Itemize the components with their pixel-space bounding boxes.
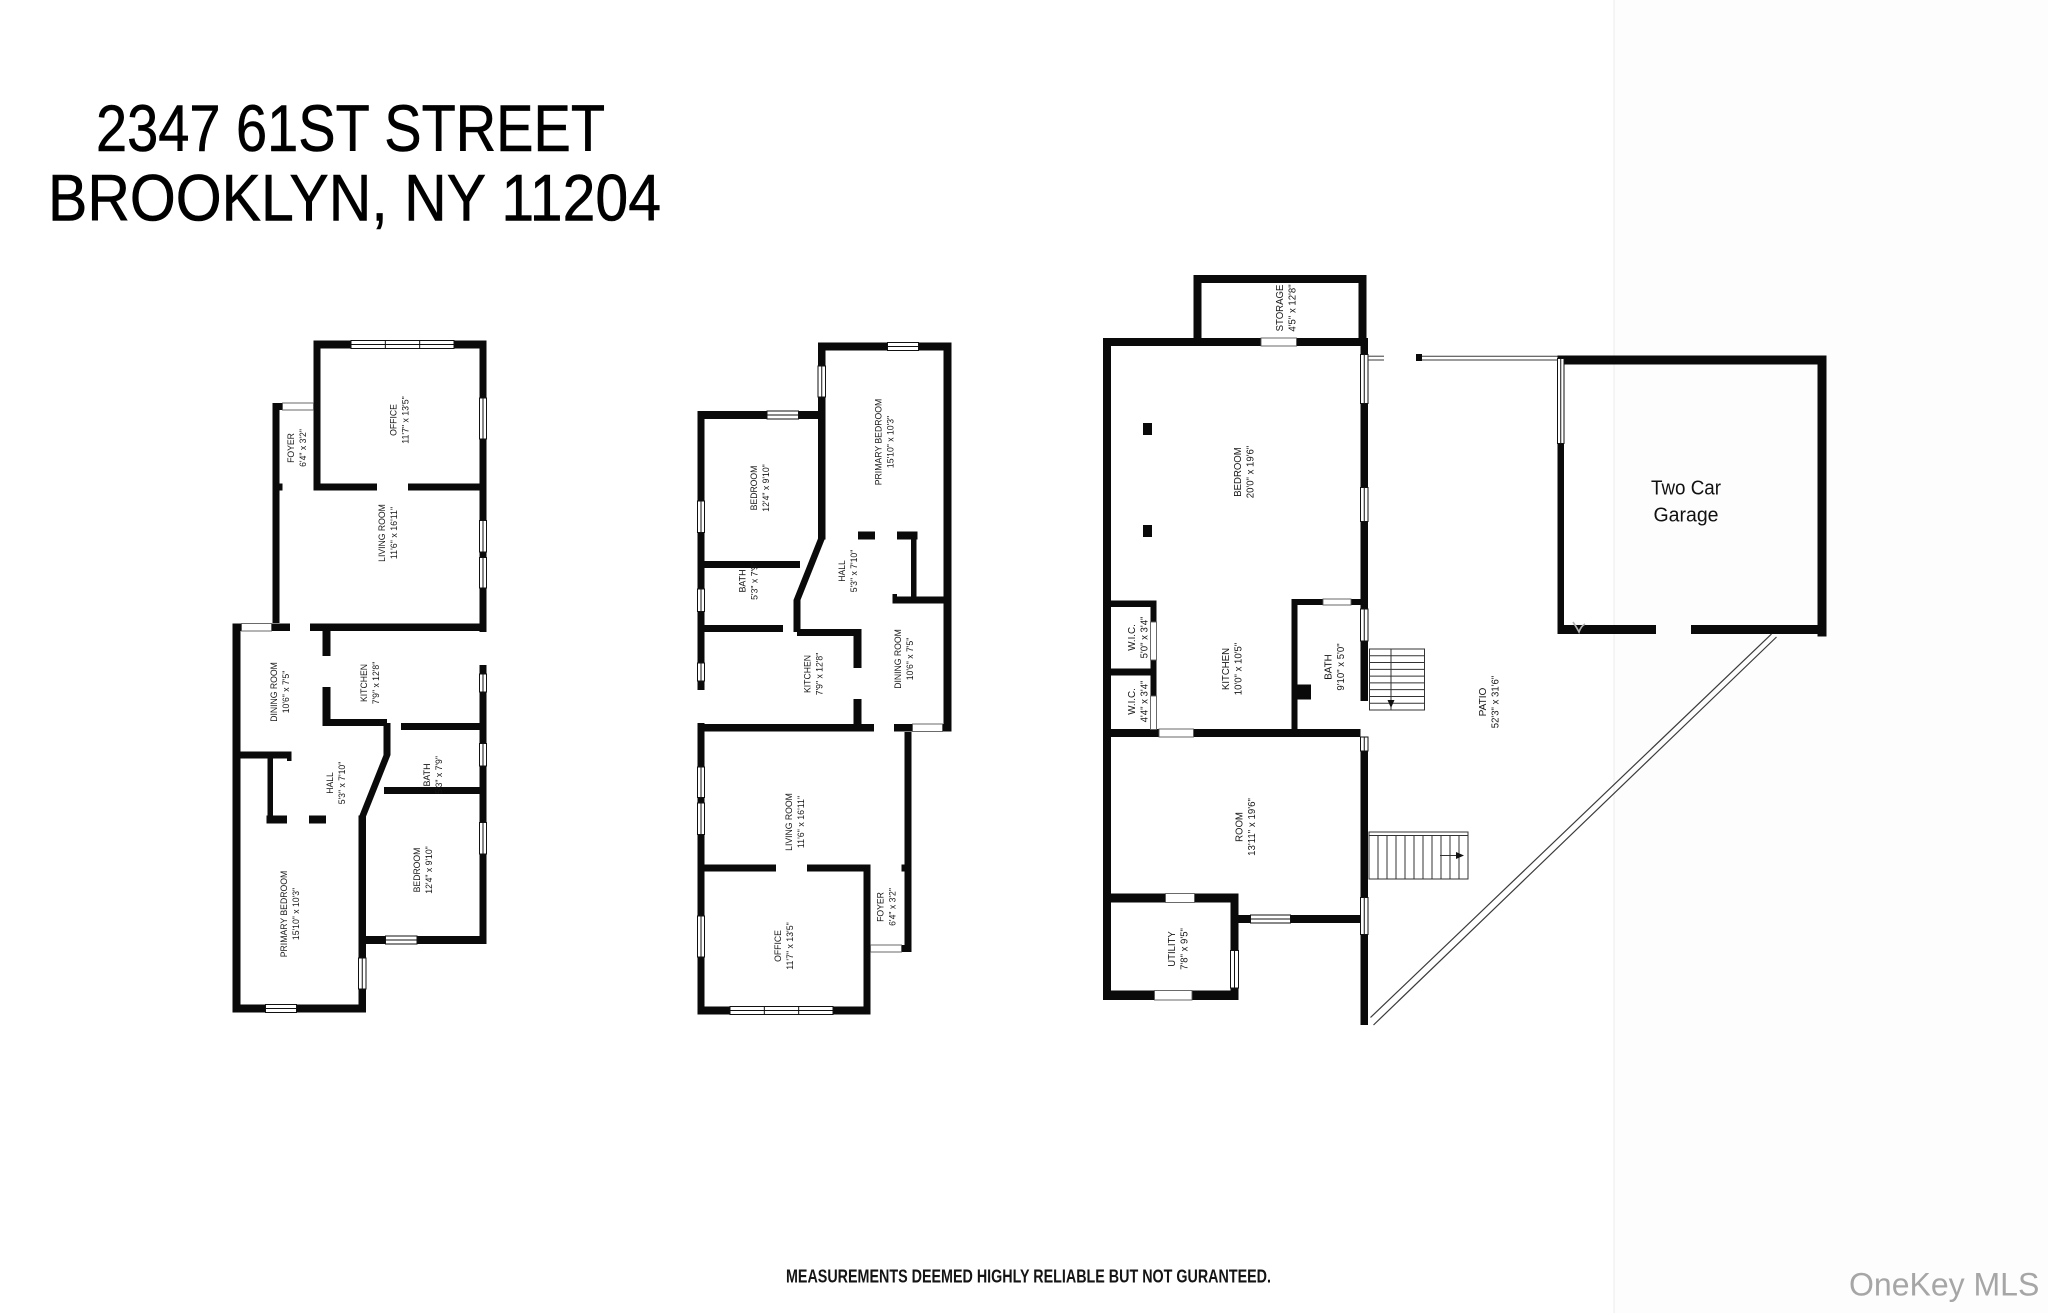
svg-text:PRIMARY BEDROOM: PRIMARY BEDROOM: [278, 871, 289, 958]
svg-text:KITCHEN: KITCHEN: [802, 655, 813, 693]
svg-text:ROOM: ROOM: [1234, 812, 1245, 842]
svg-text:20'0" x 19'6": 20'0" x 19'6": [1245, 445, 1256, 498]
svg-text:11'7" x 13'5": 11'7" x 13'5": [784, 922, 795, 969]
svg-text:10'0" x 10'5": 10'0" x 10'5": [1233, 642, 1244, 695]
svg-text:7'9" x 12'8": 7'9" x 12'8": [370, 662, 381, 705]
svg-text:13'11" x 19'6": 13'11" x 19'6": [1247, 798, 1258, 856]
svg-text:BEDROOM: BEDROOM: [748, 465, 759, 510]
svg-text:LIVING ROOM: LIVING ROOM: [376, 504, 387, 562]
svg-text:PATIO: PATIO: [1478, 688, 1489, 717]
svg-text:W.I.C.: W.I.C.: [1127, 624, 1138, 651]
svg-text:11'7" x 13'5": 11'7" x 13'5": [400, 396, 411, 443]
svg-text:BROOKLYN, NY 11204: BROOKLYN, NY 11204: [48, 162, 661, 235]
svg-text:5'3" x 7'9": 5'3" x 7'9": [749, 562, 760, 600]
svg-text:6'4" x 3'2": 6'4" x 3'2": [297, 429, 308, 467]
svg-text:4'4" x 3'4": 4'4" x 3'4": [1139, 680, 1150, 722]
svg-text:5'3" x 7'10": 5'3" x 7'10": [848, 550, 859, 593]
svg-text:BEDROOM: BEDROOM: [1233, 447, 1244, 496]
svg-text:FOYER: FOYER: [875, 892, 886, 922]
svg-text:KITCHEN: KITCHEN: [1221, 648, 1232, 690]
svg-text:2347 61ST STREET: 2347 61ST STREET: [96, 92, 605, 165]
svg-text:7'9" x 12'8": 7'9" x 12'8": [814, 653, 825, 696]
svg-text:11'6" x 16'11": 11'6" x 16'11": [388, 507, 399, 559]
svg-text:LIVING ROOM: LIVING ROOM: [783, 793, 794, 851]
svg-text:15'10" x 10'3": 15'10" x 10'3": [885, 416, 896, 468]
svg-text:Garage: Garage: [1654, 504, 1719, 527]
svg-text:MEASUREMENTS DEEMED HIGHLY REL: MEASUREMENTS DEEMED HIGHLY RELIABLE BUT …: [786, 1266, 1271, 1287]
svg-text:W.I.C.: W.I.C.: [1127, 688, 1138, 715]
svg-text:OneKey MLS: OneKey MLS: [1849, 1267, 2039, 1303]
svg-text:FOYER: FOYER: [285, 433, 296, 463]
svg-text:9'10" x 5'0": 9'10" x 5'0": [1336, 643, 1347, 690]
svg-text:HALL: HALL: [836, 560, 847, 582]
svg-text:12'4" x 9'10": 12'4" x 9'10": [760, 464, 771, 511]
svg-text:BATH: BATH: [737, 569, 748, 592]
svg-text:BATH: BATH: [421, 763, 432, 786]
svg-text:PRIMARY BEDROOM: PRIMARY BEDROOM: [873, 399, 884, 486]
svg-text:BEDROOM: BEDROOM: [411, 847, 422, 892]
svg-text:OFFICE: OFFICE: [388, 404, 399, 436]
svg-text:HALL: HALL: [324, 772, 335, 794]
svg-text:4'5" x 12'8": 4'5" x 12'8": [1287, 284, 1298, 331]
svg-text:KITCHEN: KITCHEN: [358, 664, 369, 702]
svg-text:UTILITY: UTILITY: [1167, 931, 1178, 967]
svg-text:15'10" x 10'3": 15'10" x 10'3": [290, 888, 301, 940]
svg-text:5'0" x 3'4": 5'0" x 3'4": [1139, 616, 1150, 658]
svg-text:DINING ROOM: DINING ROOM: [892, 629, 903, 689]
svg-text:52'3" x 31'6": 52'3" x 31'6": [1490, 675, 1501, 728]
svg-text:5'3" x 7'9": 5'3" x 7'9": [433, 756, 444, 794]
svg-text:5'3" x 7'10": 5'3" x 7'10": [336, 762, 347, 805]
svg-text:STORAGE: STORAGE: [1275, 285, 1286, 332]
svg-text:OFFICE: OFFICE: [772, 930, 783, 962]
svg-text:11'6" x 16'11": 11'6" x 16'11": [795, 796, 806, 848]
svg-text:10'6" x 7'5": 10'6" x 7'5": [280, 671, 291, 714]
svg-text:6'4" x 3'2": 6'4" x 3'2": [887, 888, 898, 926]
svg-text:7'8" x 9'5": 7'8" x 9'5": [1179, 928, 1190, 970]
svg-text:DINING ROOM: DINING ROOM: [268, 662, 279, 722]
svg-text:10'6" x 7'5": 10'6" x 7'5": [904, 638, 915, 681]
svg-text:12'4" x 9'10": 12'4" x 9'10": [423, 846, 434, 893]
svg-text:BATH: BATH: [1323, 654, 1334, 680]
svg-text:Two Car: Two Car: [1651, 477, 1721, 500]
